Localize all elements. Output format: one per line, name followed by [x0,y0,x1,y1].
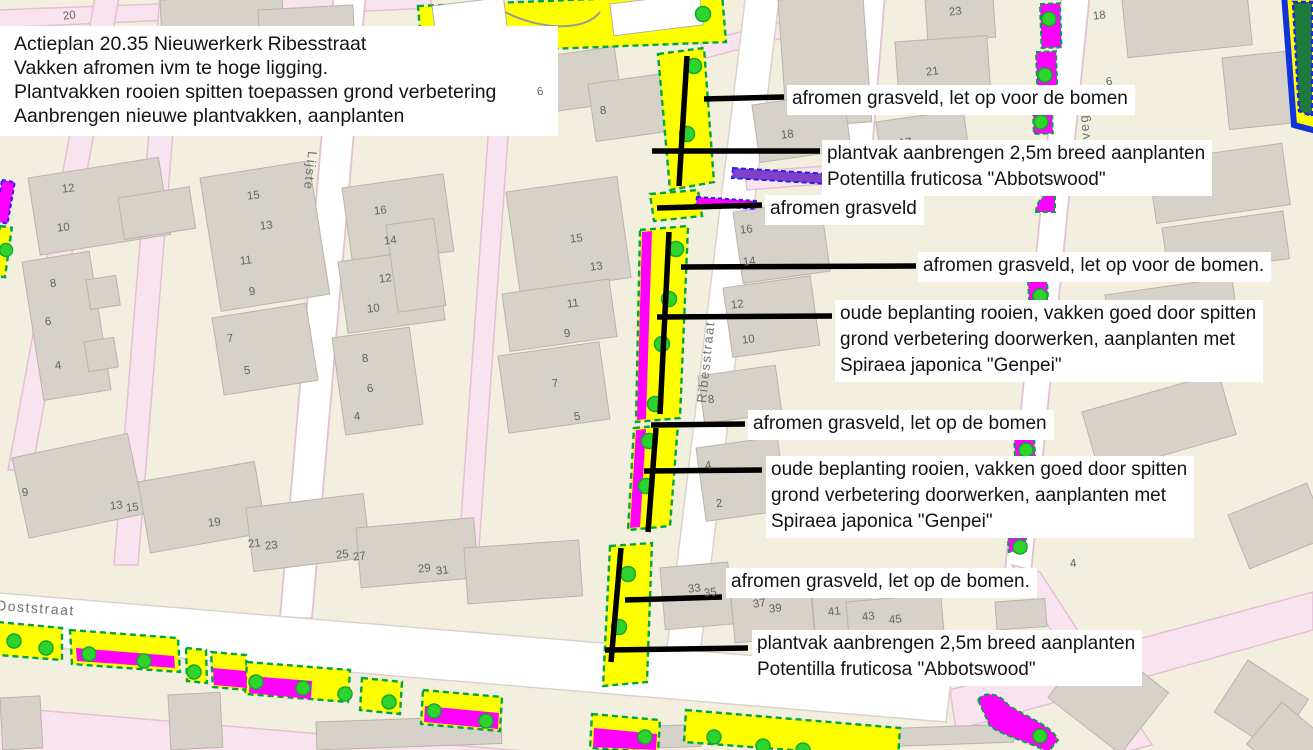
annotation-a8: afromen grasveld, let op de bomen. [726,568,1037,598]
house-number: 12 [61,182,75,195]
leader-line-a6 [651,424,745,425]
title-line-4: Aanbrengen nieuwe plantvakken, aanplante… [14,104,554,128]
house-number: 6 [536,86,544,99]
annotation-a7: oude beplanting rooien, vakken goed door… [766,456,1194,538]
house-number: 27 [352,550,366,563]
bed-left-edge [0,180,15,224]
house-number: 6 [44,316,52,329]
grass-strip-4 [603,543,652,686]
annotation-a4: afromen grasveld, let op voor de bomen. [918,252,1271,282]
house-number: 4 [704,460,712,473]
house-number: 20 [62,9,76,22]
annotation-a5: oude beplanting rooien, vakken goed door… [835,300,1263,382]
house-number: 23 [948,5,962,18]
house-number: 4 [353,411,361,424]
house-number: 11 [239,254,252,267]
leader-line-a1 [704,97,784,99]
house-number: 13 [259,219,273,232]
annotation-a3: afromen grasveld [765,195,924,225]
house-number: 45 [888,613,902,626]
leader-line-a5 [657,316,832,317]
house-number: 10 [56,221,70,234]
house-number: 8 [49,278,57,291]
ooststraat-strip-6 [360,678,402,714]
house-number: 12 [730,298,744,311]
house-number: 5 [573,411,581,424]
house-number: 19 [207,516,221,529]
house-number: 9 [248,286,256,299]
house-number: 16 [373,204,387,217]
house-number: 6 [366,383,374,396]
map-canvas[interactable]: Actieplan 20.35 Nieuwerkerk Ribesstraat … [0,0,1313,750]
house-number: 15 [246,189,260,202]
house-number: 8 [361,353,369,366]
house-number: 23 [264,539,278,552]
house-number: 10 [741,333,755,346]
house-number: 4 [54,360,62,373]
house-number: 9 [563,328,571,341]
house-number: 7 [551,378,559,391]
leader-line-a9 [605,648,748,650]
house-number: 25 [335,548,349,561]
title-block: Actieplan 20.35 Nieuwerkerk Ribesstraat … [0,26,558,136]
leader-line-a7 [644,470,762,471]
house-number: 37 [752,597,766,610]
house-number: 41 [827,605,841,618]
house-number: 21 [247,537,261,550]
bed-oost-4 [213,668,247,688]
title-line-3: Plantvakken rooien spitten toepassen gro… [14,80,554,104]
annotation-a1: afromen grasveld, let op voor de bomen [787,85,1135,115]
house-number: 16 [739,223,753,236]
house-number: 14 [742,255,756,268]
annotation-a6: afromen grasveld, let op de bomen [748,410,1054,440]
house-number: 15 [569,232,583,245]
house-number: 10 [366,302,380,315]
house-number: 14 [383,234,397,247]
title-line-2: Vakken afromen ivm te hoge ligging. [14,56,554,80]
house-number: 18 [780,128,794,141]
house-number: 21 [925,65,939,78]
annotation-a9: plantvak aanbrengen 2,5m breed aanplante… [752,630,1142,686]
leader-line-a3 [657,205,762,208]
house-number: 31 [435,564,449,577]
house-number: 35 [703,586,717,599]
house-number: 5 [243,365,251,378]
house-number: 13 [109,499,123,512]
house-number: 18 [1092,9,1106,22]
house-number: 39 [768,602,782,615]
annotation-a2: plantvak aanbrengen 2,5m breed aanplante… [822,140,1212,196]
house-number: 15 [125,501,139,514]
house-number: 9 [21,487,29,500]
title-line-1: Actieplan 20.35 Nieuwerkerk Ribesstraat [14,32,554,56]
house-number: 29 [417,562,431,575]
house-number: 12 [378,272,392,285]
leader-line-a4 [681,266,916,267]
house-number: 7 [226,333,234,346]
house-number: 8 [599,105,607,118]
house-number: 33 [687,582,701,595]
house-number: 13 [589,260,603,273]
street-label-veg: veg [1076,113,1093,140]
house-number: 11 [566,297,579,310]
house-number: 2 [715,498,723,511]
house-number: 4 [1069,558,1077,571]
house-number: 43 [861,610,875,623]
